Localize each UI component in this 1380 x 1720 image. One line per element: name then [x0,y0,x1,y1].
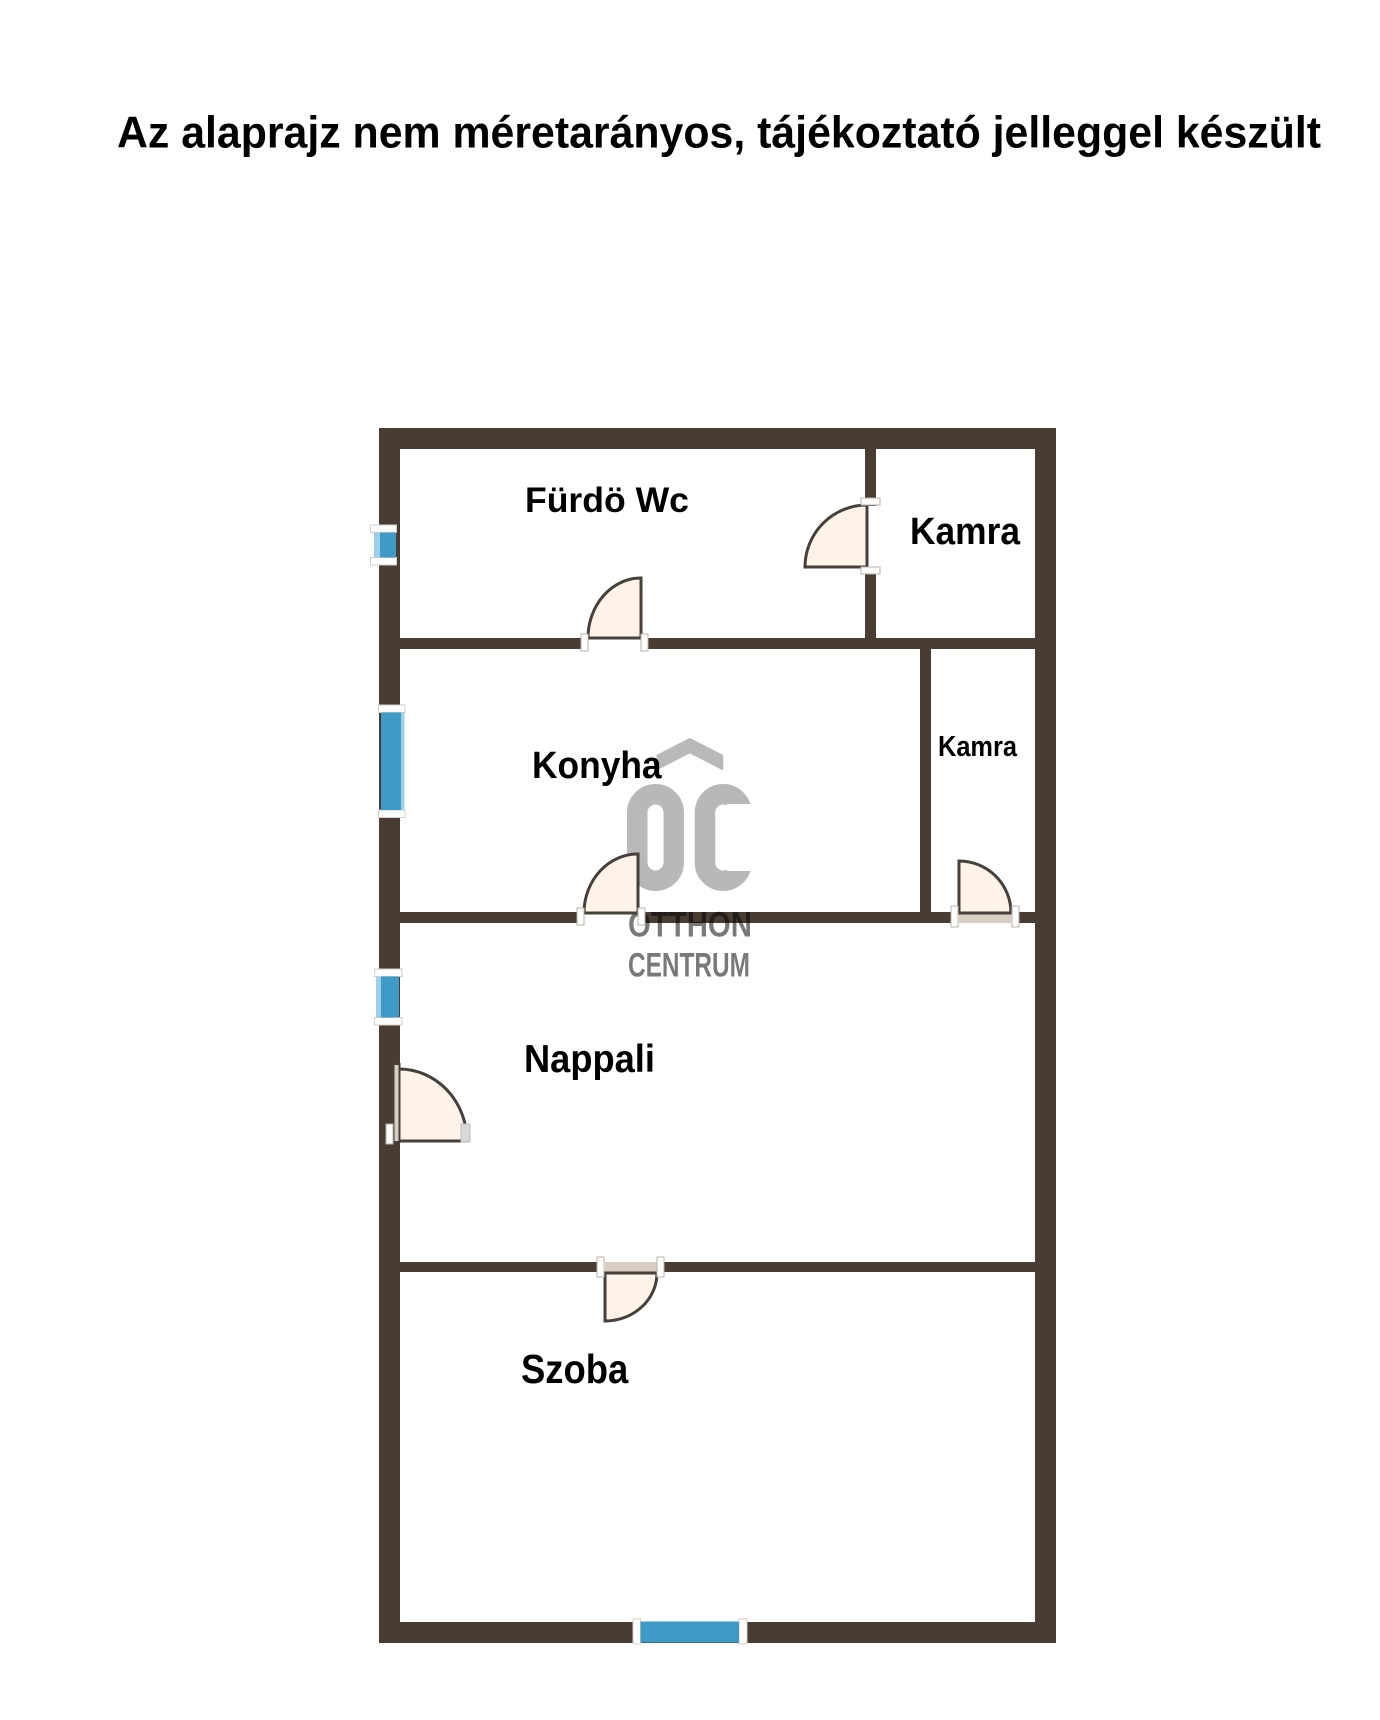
svg-text:CENTRUM: CENTRUM [628,947,750,985]
svg-text:OTTHON: OTTHON [628,905,752,944]
svg-text:Az alaprajz nem méretarányos,: Az alaprajz nem méretarányos, tájékoztat… [117,108,1321,158]
svg-text:Fürdö Wc: Fürdö Wc [525,480,689,520]
svg-text:Szoba: Szoba [521,1347,629,1392]
svg-text:Kamra: Kamra [938,731,1018,763]
svg-text:Nappali: Nappali [524,1037,655,1080]
svg-text:Kamra: Kamra [910,510,1020,553]
svg-text:Konyha: Konyha [532,744,662,787]
